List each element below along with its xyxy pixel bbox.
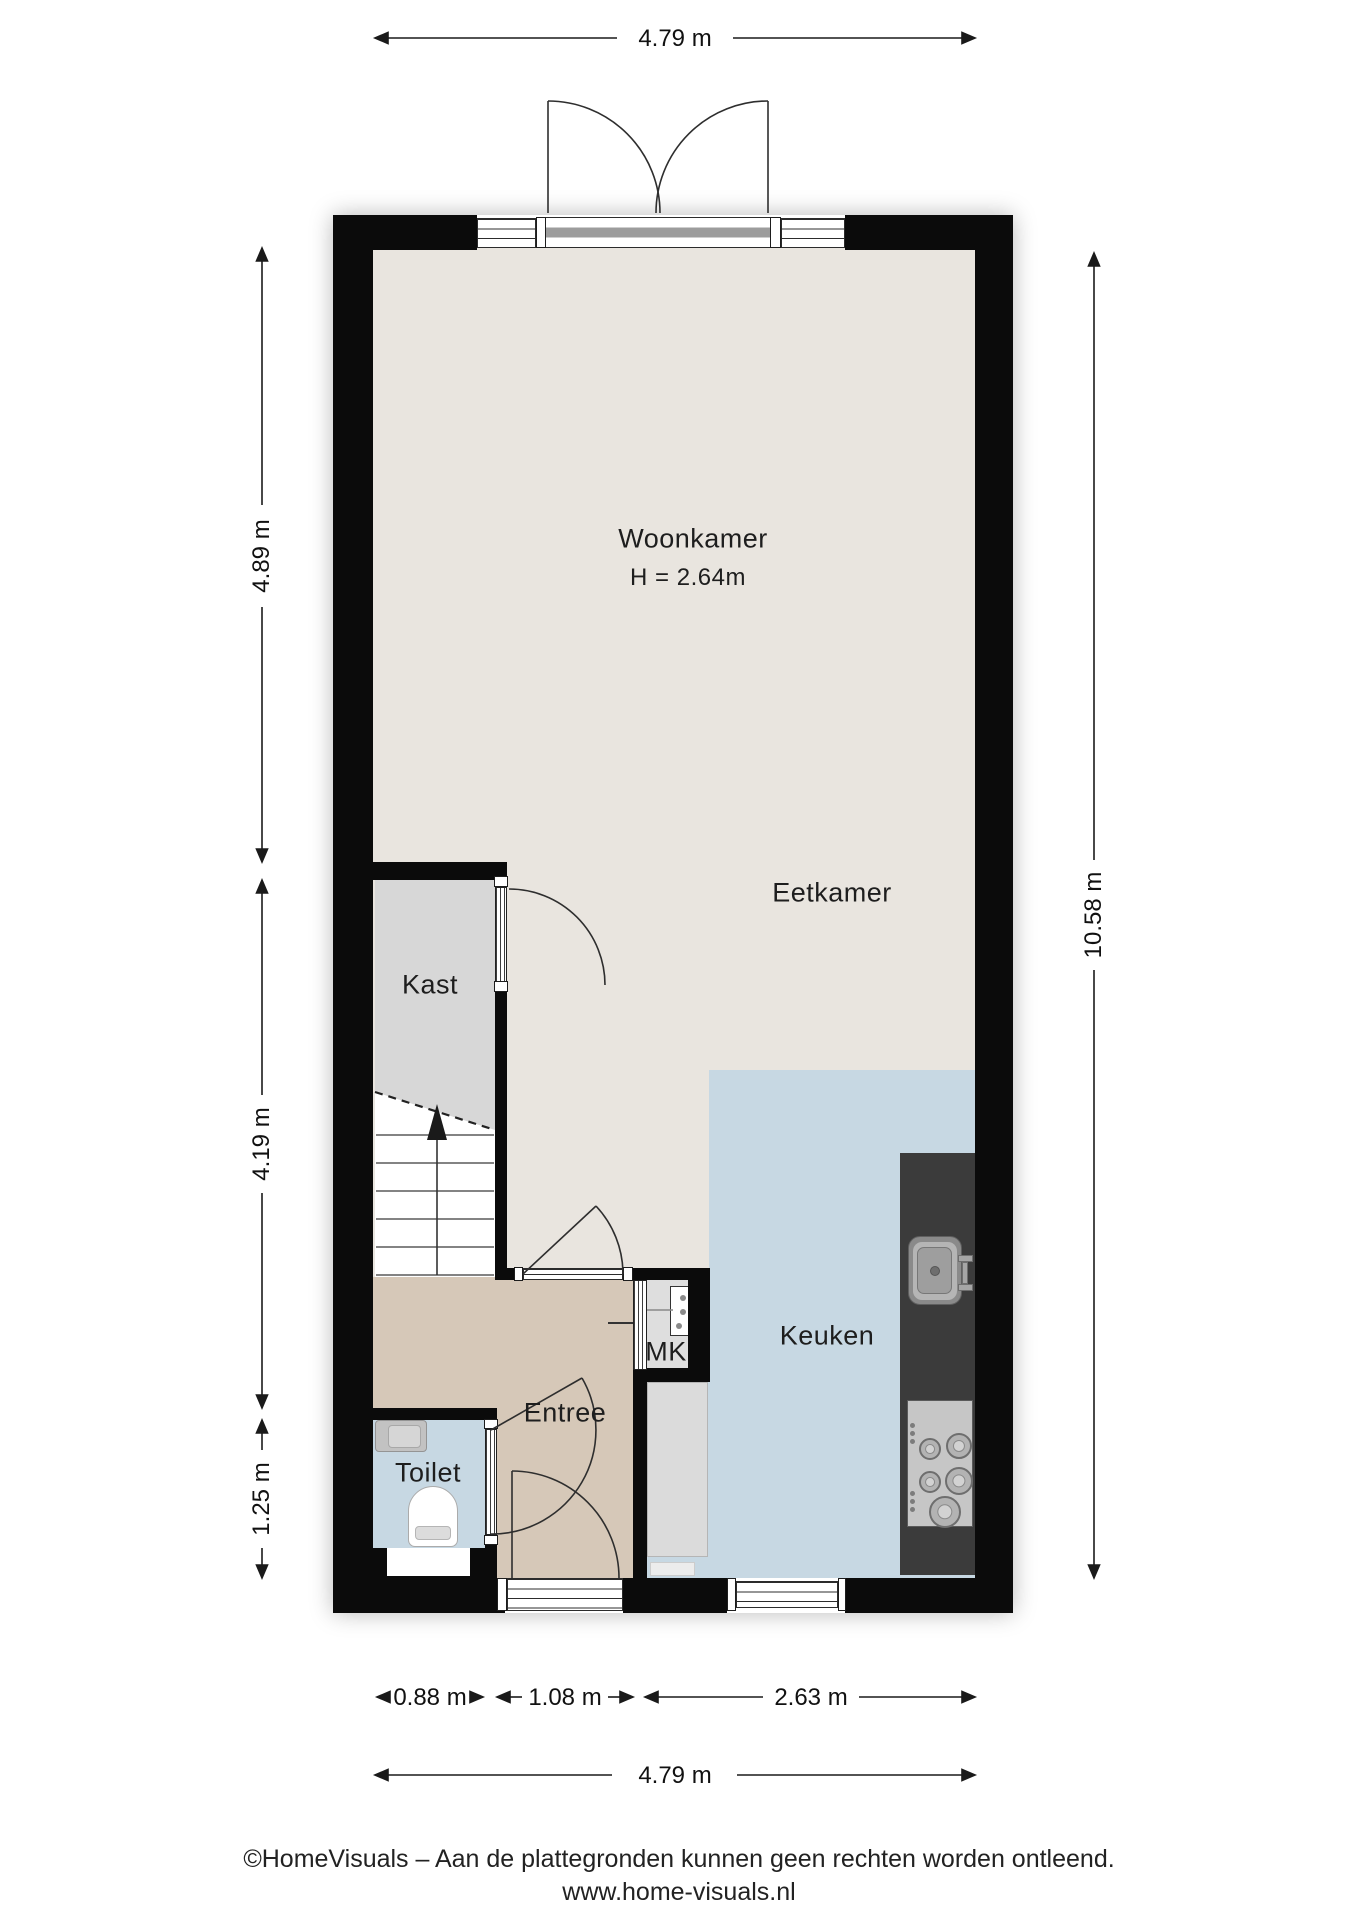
wall-bottom-left [333, 1578, 505, 1613]
kitchen-cabinet [647, 1382, 708, 1557]
kitchen-cabinet-plinth [650, 1562, 695, 1576]
wall-bottom-middle [623, 1578, 727, 1613]
dim-right-height: 10.58 m [1080, 872, 1108, 959]
door-post [484, 1419, 498, 1429]
room-label-toilet: Toilet [395, 1458, 461, 1489]
wall-left [333, 215, 373, 1613]
toilet-niche [387, 1548, 470, 1576]
door-post [494, 981, 508, 992]
room-label-mk: MK [645, 1337, 687, 1368]
door-post [623, 1267, 633, 1281]
faucet-icon [958, 1284, 973, 1291]
dim-left-middle: 4.19 m [248, 1107, 276, 1180]
wall-toilet-top [373, 1408, 497, 1420]
window-post [727, 1578, 736, 1611]
room-height-note: H = 2.64m [630, 564, 746, 592]
faucet-icon [962, 1262, 968, 1284]
window-top-right [781, 218, 845, 248]
room-label-keuken: Keuken [780, 1321, 875, 1352]
dim-bottom-keuken: 2.63 m [774, 1684, 847, 1712]
wall-kast-top [373, 862, 507, 880]
door-post [497, 1578, 507, 1611]
footer-disclaimer: ©HomeVisuals – Aan de plattegronden kunn… [0, 1845, 1358, 1874]
room-label-eetkamer: Eetkamer [772, 878, 892, 909]
meter-box-icon [670, 1286, 690, 1336]
window-top-left [477, 218, 536, 248]
dim-left-lower: 1.25 m [248, 1462, 276, 1535]
eetkamer-door-opening [523, 1268, 623, 1280]
french-door-threshold [546, 217, 770, 248]
wall-mk-bottom [633, 1368, 710, 1382]
washbasin-icon [375, 1420, 427, 1452]
dim-top-width: 4.79 m [638, 25, 711, 53]
footer-website: www.home-visuals.nl [0, 1878, 1358, 1907]
door-post [494, 876, 508, 887]
stove-icon [907, 1400, 973, 1527]
faucet-icon [958, 1255, 973, 1262]
dim-bottom-total: 4.79 m [638, 1762, 711, 1790]
stairs-area [375, 1093, 495, 1277]
floorplan-page: { "floorplan": { "rooms": { "woonkamer":… [0, 0, 1358, 1920]
door-post [770, 217, 781, 248]
wall-right [975, 215, 1013, 1613]
wall-bottom-right [845, 1578, 1013, 1613]
room-label-woonkamer: Woonkamer [618, 524, 768, 555]
wall-top-left [333, 215, 477, 250]
wall-entree-keuken [633, 1382, 647, 1578]
window-keuken [736, 1581, 838, 1608]
dim-bottom-entree: 1.08 m [528, 1684, 601, 1712]
dim-bottom-toilet: 0.88 m [393, 1684, 466, 1712]
kast-door [495, 887, 507, 982]
room-label-entree: Entree [524, 1398, 607, 1429]
toilet-icon [408, 1486, 458, 1547]
door-post [484, 1535, 498, 1545]
window-post [838, 1578, 846, 1611]
dim-left-upper: 4.89 m [248, 519, 276, 592]
front-door-opening [507, 1578, 623, 1611]
room-label-kast: Kast [402, 970, 458, 1001]
wall-mk-right [688, 1280, 710, 1382]
toilet-door [485, 1429, 497, 1535]
door-post [536, 217, 546, 248]
door-post [514, 1267, 523, 1281]
sink-icon [908, 1236, 962, 1305]
